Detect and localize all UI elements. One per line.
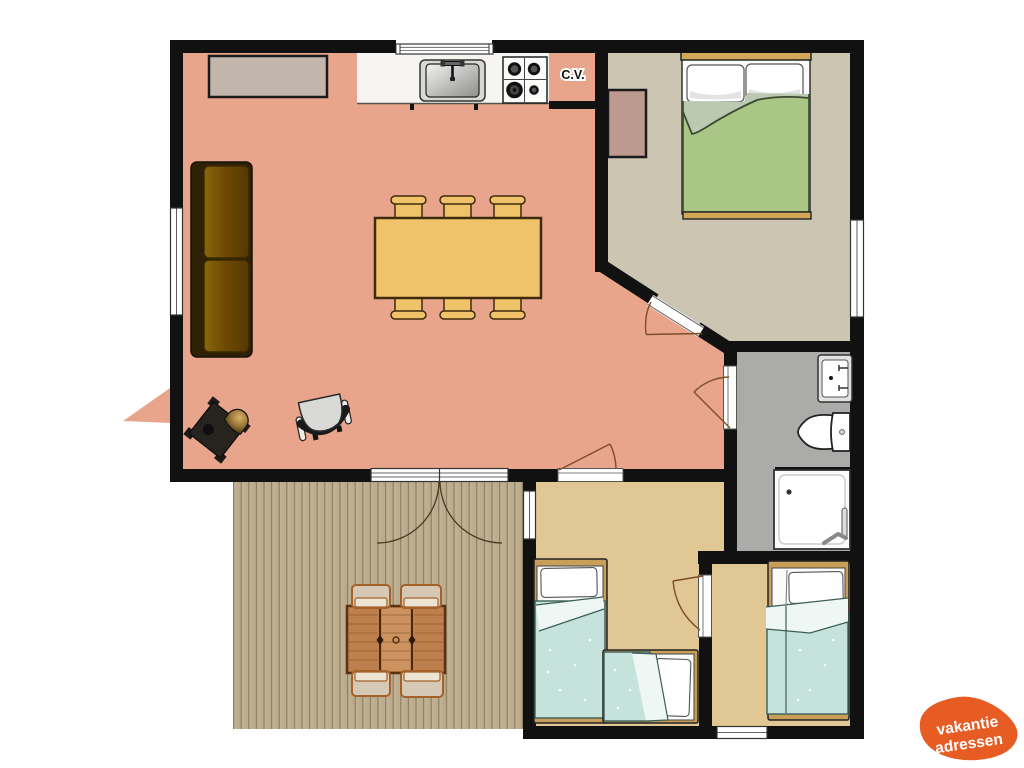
svg-text:C.V.: C.V. [561,68,584,82]
